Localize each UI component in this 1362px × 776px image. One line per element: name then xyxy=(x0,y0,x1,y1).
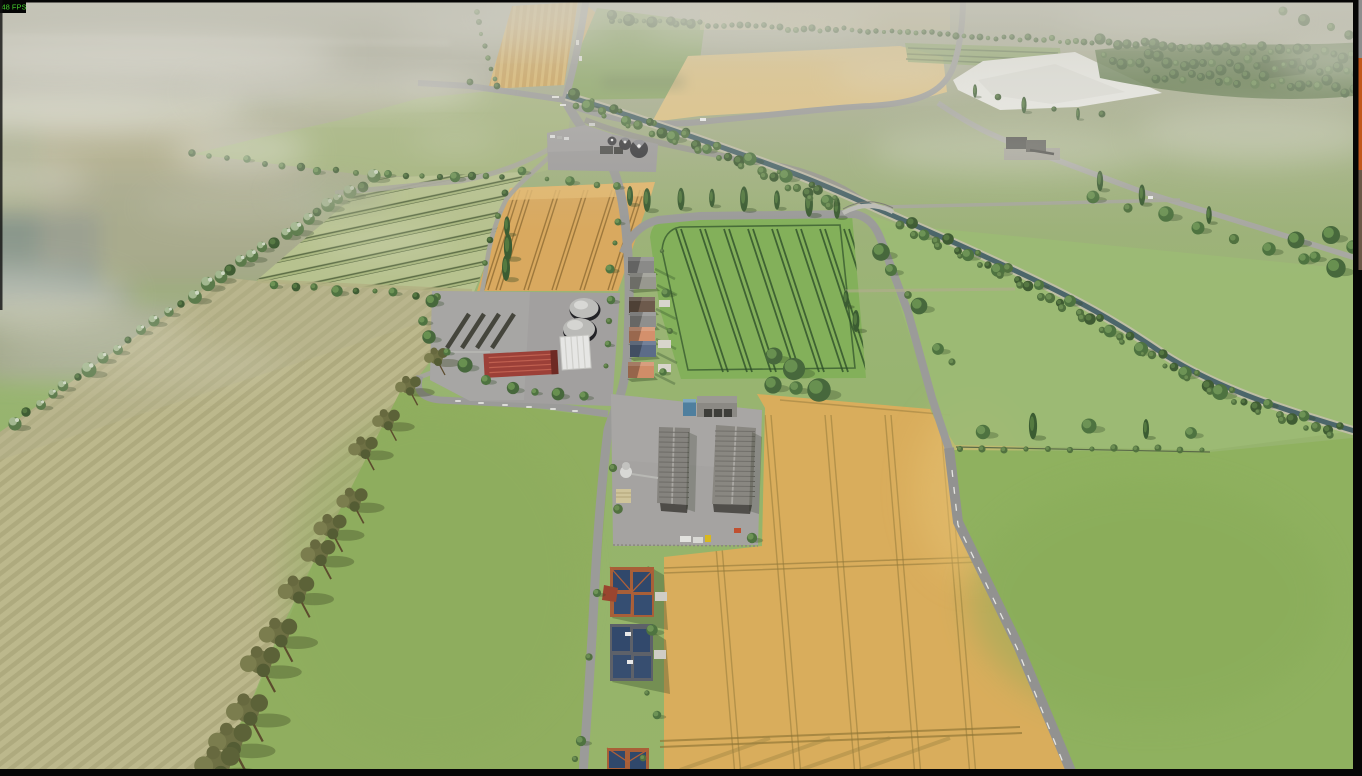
svg-text:48 FPS: 48 FPS xyxy=(2,3,27,12)
